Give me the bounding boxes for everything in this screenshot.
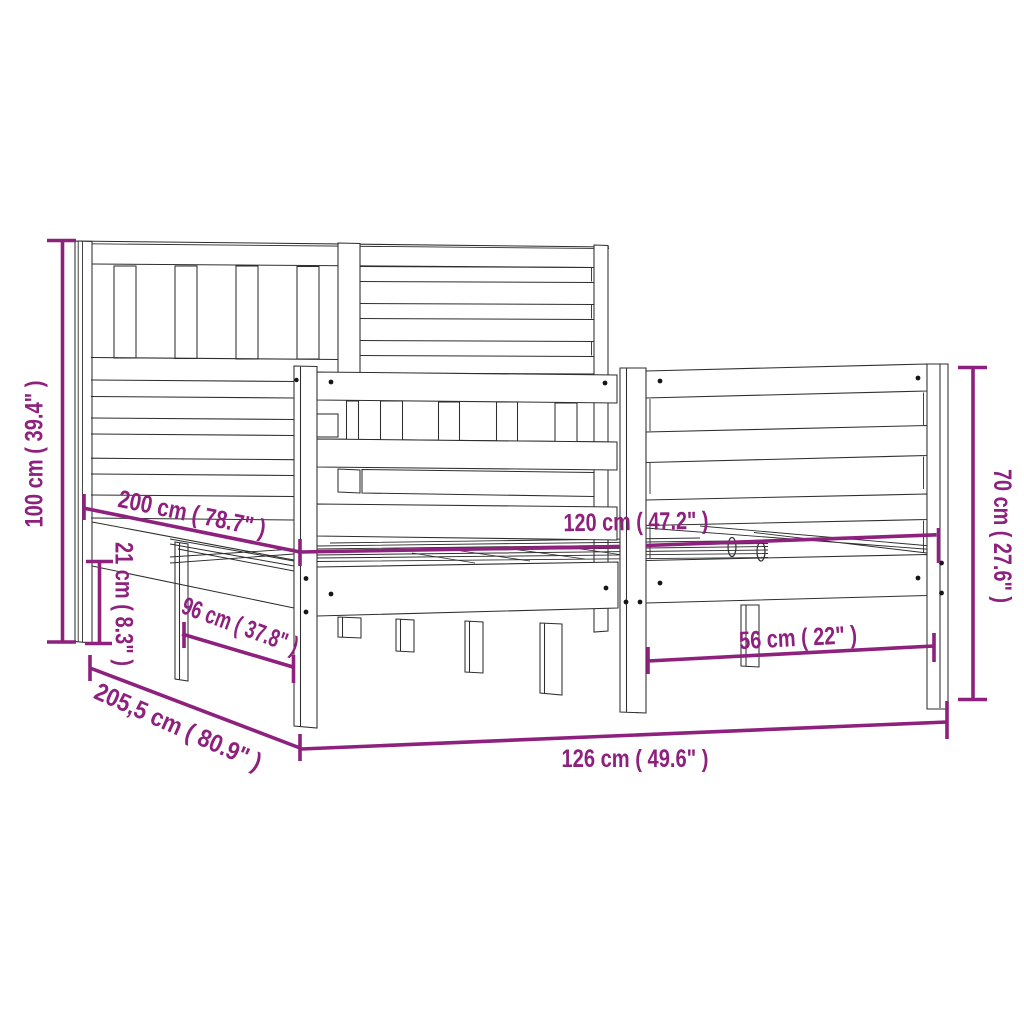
svg-text:100 cm ( 39.4" ): 100 cm ( 39.4" ) — [21, 381, 49, 528]
svg-text:126 cm ( 49.6" ): 126 cm ( 49.6" ) — [562, 745, 709, 773]
svg-text:70 cm ( 27.6" ): 70 cm ( 27.6" ) — [988, 469, 1016, 603]
svg-text:21 cm ( 8.3" ): 21 cm ( 8.3" ) — [110, 542, 138, 666]
svg-text:120 cm ( 47.2" ): 120 cm ( 47.2" ) — [563, 507, 708, 538]
